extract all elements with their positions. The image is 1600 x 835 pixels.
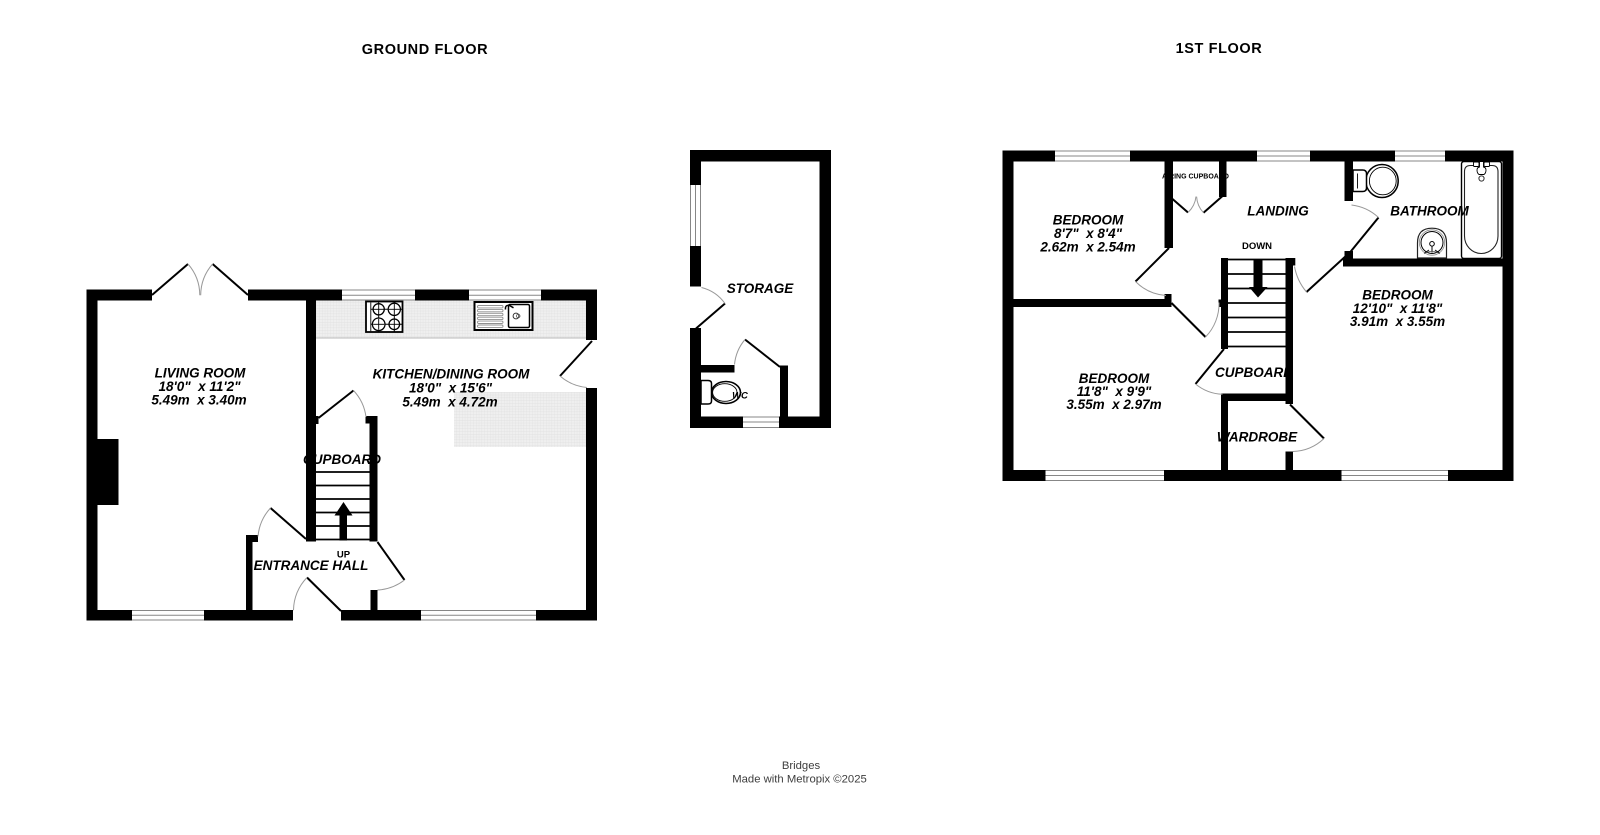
svg-text:5.49m x 3.40m: 5.49m x 3.40m xyxy=(151,393,246,408)
svg-text:LANDING: LANDING xyxy=(1247,204,1309,219)
svg-text:Made with Metropix ©2025: Made with Metropix ©2025 xyxy=(732,774,867,786)
svg-text:3.91m x 3.55m: 3.91m x 3.55m xyxy=(1350,314,1445,329)
svg-text:WC: WC xyxy=(732,391,748,402)
svg-text:18'0" x 15'6": 18'0" x 15'6" xyxy=(409,381,493,396)
svg-text:Bridges: Bridges xyxy=(782,760,821,772)
svg-text:CUPBOARD: CUPBOARD xyxy=(303,452,381,467)
svg-text:AIRING CUPBOARD: AIRING CUPBOARD xyxy=(1162,174,1229,181)
svg-text:5.49m x 4.72m: 5.49m x 4.72m xyxy=(402,395,497,410)
svg-text:3.55m x 2.97m: 3.55m x 2.97m xyxy=(1066,397,1161,412)
svg-text:DOWN: DOWN xyxy=(1242,241,1272,252)
svg-text:2.62m x 2.54m: 2.62m x 2.54m xyxy=(1039,240,1135,255)
svg-text:WARDROBE: WARDROBE xyxy=(1217,430,1298,445)
svg-text:ENTRANCE HALL: ENTRANCE HALL xyxy=(254,558,369,573)
svg-text:GROUND FLOOR: GROUND FLOOR xyxy=(362,42,488,58)
svg-text:CUPBOARD: CUPBOARD xyxy=(1215,365,1293,380)
svg-text:1ST FLOOR: 1ST FLOOR xyxy=(1176,41,1263,57)
svg-text:BATHROOM: BATHROOM xyxy=(1390,204,1469,219)
svg-text:STORAGE: STORAGE xyxy=(727,281,795,296)
svg-text:KITCHEN/DINING ROOM: KITCHEN/DINING ROOM xyxy=(373,367,531,382)
